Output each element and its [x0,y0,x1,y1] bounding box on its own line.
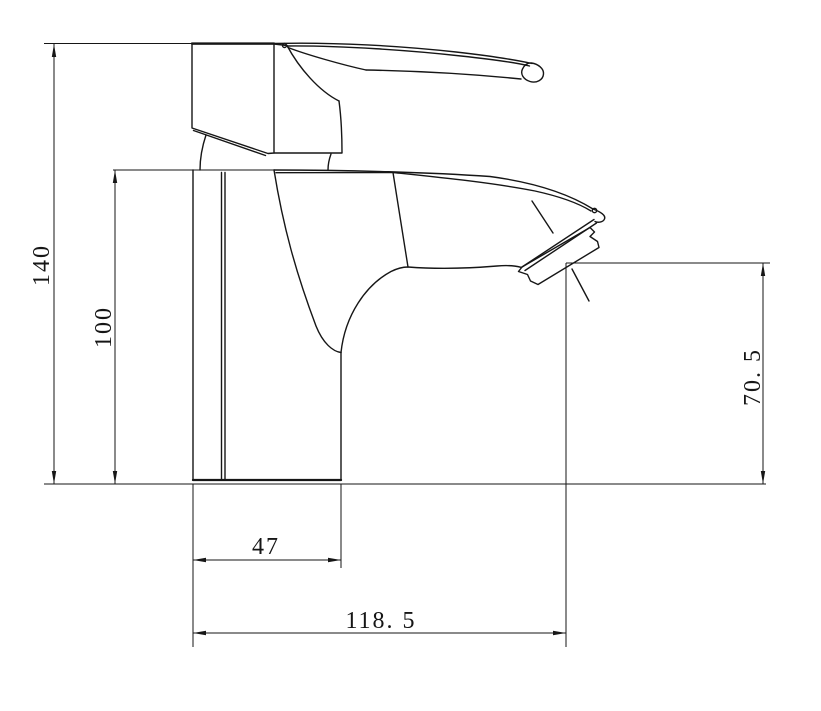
spout-underside-edge [408,266,521,269]
dim-label-body-height: 100 [92,306,116,348]
handle-assembly-outline [192,43,544,170]
outlet-axis-tick-lower [572,269,589,301]
body-spout-concave-blend [341,267,408,353]
dimension-lines [44,44,770,648]
arrow-down-100 [113,471,117,484]
dim-label-overall-height: 140 [30,244,54,286]
neck-right-curve [328,154,331,170]
dimension-arrowheads [52,44,765,635]
arrow-up-140 [52,44,56,57]
spout-beak-tip [593,209,605,222]
spout-top-edge-lower [276,173,591,212]
dim-label-outlet-height: 70. 5 [741,348,765,406]
spout-top-edge-upper [274,170,593,209]
lever-top-edge-inner [287,46,530,66]
outlet-axis-tick-upper [532,201,553,233]
lever-bottom-edge [366,70,521,79]
cartridge-box-side-right-edge [339,101,342,153]
body-front-sweep-curve [274,170,341,353]
faucet-line-art [0,0,821,711]
spout-beak-dot [592,208,596,212]
arrow-right-118 [553,631,566,635]
spout-edge-band-upper [522,220,594,268]
dim-label-spout-reach: 118. 5 [345,609,416,633]
dim-label-base-width: 47 [252,535,280,559]
arrow-down-70 [761,471,765,484]
arrow-right-47 [328,558,341,562]
arrow-down-140 [52,471,56,484]
arrow-left-47 [193,558,206,562]
spout-crease-line [393,173,408,268]
arrow-up-70 [761,263,765,276]
body-spout-outline [193,170,605,480]
neck-left-curve [200,135,206,170]
faucet-technical-drawing: 140 100 47 118. 5 70. 5 [0,0,821,711]
arrow-left-118 [193,631,206,635]
aerator-outline [519,228,600,285]
cartridge-box-front-face [192,44,274,154]
arrow-up-100 [113,170,117,183]
lever-tip-knob [522,63,544,82]
cartridge-box-blend-curve [287,46,339,102]
